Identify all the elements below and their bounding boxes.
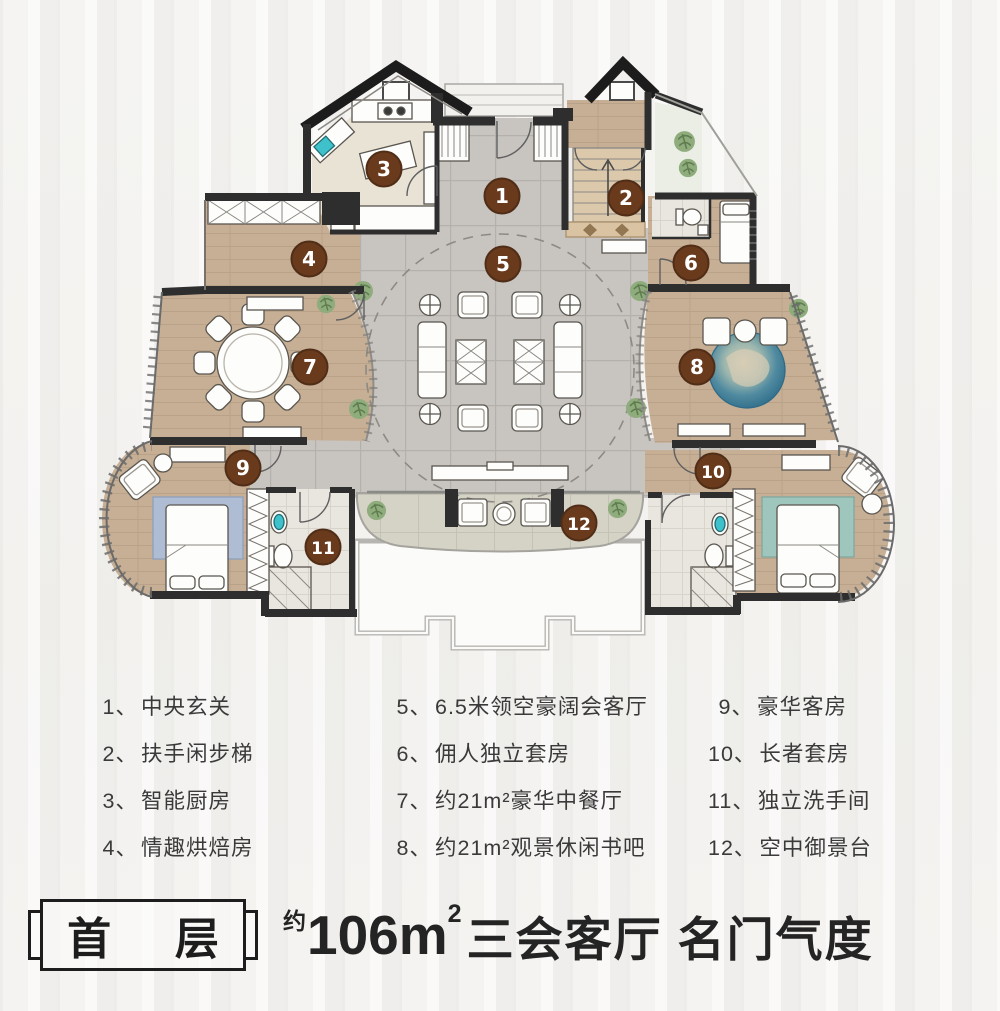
sink [698, 225, 708, 235]
toilet [683, 209, 701, 225]
pillow [723, 204, 749, 215]
burner [384, 107, 392, 115]
toilet-tank [726, 546, 733, 566]
side-table [862, 494, 882, 514]
legend-item-2: 2、扶手闲步梯 [92, 729, 254, 776]
sofa [554, 322, 582, 398]
room-marker-number: 9 [236, 456, 250, 480]
console [678, 424, 730, 436]
kitchen-hall-floor [360, 232, 440, 295]
living-floor [352, 291, 650, 441]
sideboard [247, 297, 303, 310]
legend-num: 10、 [708, 737, 756, 768]
stair-landing-floor [567, 100, 650, 148]
pillow [199, 576, 224, 589]
legend-label: 独立洗手间 [758, 784, 871, 815]
toilet-tank [676, 209, 683, 225]
legend-num: 1、 [92, 690, 138, 721]
legend-item-11: 11、独立洗手间 [708, 776, 872, 823]
legend-item-4: 4、情趣烘焙房 [92, 823, 254, 870]
legend-item-1: 1、中央玄关 [92, 682, 254, 729]
legend-label: 情趣烘焙房 [141, 831, 254, 862]
legend-num: 2、 [92, 737, 138, 768]
toilet [705, 544, 723, 568]
legend-item-8: 8、约21m²观景休闲书吧 [386, 823, 648, 870]
legend-label: 豪华客房 [757, 690, 847, 721]
legend-column-1: 1、中央玄关 2、扶手闲步梯 3、智能厨房 4、情趣烘焙房 [92, 682, 254, 870]
legend-item-6: 6、佣人独立套房 [386, 729, 648, 776]
legend: 1、中央玄关 2、扶手闲步梯 3、智能厨房 4、情趣烘焙房 5、6.5米领空豪阔… [0, 682, 1000, 882]
pillow [170, 576, 195, 589]
legend-num: 9、 [708, 690, 754, 721]
toilet [274, 544, 292, 568]
page: 123456789101112 1、中央玄关 2、扶手闲步梯 3、智能厨房 4、… [0, 0, 1000, 1011]
legend-item-12: 12、空中御景台 [708, 823, 872, 870]
dresser [782, 455, 830, 470]
stair-runner [566, 222, 645, 237]
room-marker-number: 1 [495, 184, 509, 208]
terrace-set [458, 499, 550, 526]
title-area-number: 106m [307, 903, 448, 967]
sofa [418, 322, 446, 398]
room-marker-number: 8 [690, 355, 704, 379]
room-marker-number: 12 [567, 515, 591, 535]
legend-item-7: 7、约21m²豪华中餐厅 [386, 776, 648, 823]
console [743, 424, 805, 436]
floor-label-box: 首层 [40, 899, 246, 971]
terrace-pillar [445, 489, 458, 527]
pillow [781, 574, 806, 587]
room-marker-number: 11 [311, 539, 335, 559]
floor-plan: 123456789101112 [0, 0, 1000, 665]
legend-label: 约21m²观景休闲书吧 [435, 831, 646, 862]
legend-num: 7、 [386, 784, 432, 815]
pillow [810, 574, 835, 587]
baking-shelf [208, 200, 320, 224]
legend-label: 空中御景台 [759, 831, 872, 862]
lounge-chair [760, 318, 787, 345]
room-marker-number: 7 [303, 355, 317, 379]
title-main-text: 三会客厅 名门气度 [467, 901, 874, 970]
legend-label: 中央玄关 [141, 690, 231, 721]
room-marker-number: 6 [684, 251, 698, 275]
legend-num: 11、 [708, 784, 755, 815]
room-marker-number: 4 [302, 247, 316, 271]
legend-label: 约21m²豪华中餐厅 [435, 784, 623, 815]
room-marker-number: 10 [701, 463, 725, 483]
room-marker-number: 5 [496, 252, 510, 276]
legend-num: 4、 [92, 831, 138, 862]
legend-num: 3、 [92, 784, 138, 815]
dresser [170, 447, 225, 462]
burner [397, 107, 405, 115]
legend-num: 12、 [708, 831, 756, 862]
lounge-chair [703, 318, 730, 345]
side-table [154, 454, 172, 472]
legend-item-9: 9、豪华客房 [708, 682, 872, 729]
terrace-table [493, 503, 515, 525]
legend-label: 智能厨房 [141, 784, 231, 815]
legend-item-5: 5、6.5米领空豪阔会客厅 [386, 682, 648, 729]
legend-item-3: 3、智能厨房 [92, 776, 254, 823]
stove [378, 103, 412, 119]
room-marker-number: 3 [377, 157, 391, 181]
title-approx-prefix: 约 [283, 902, 306, 936]
lower-floor-outline [357, 541, 643, 648]
legend-column-3: 9、豪华客房 10、长者套房 11、独立洗手间 12、空中御景台 [708, 682, 872, 870]
legend-column-2: 5、6.5米领空豪阔会客厅 6、佣人独立套房 7、约21m²豪华中餐厅 8、约2… [386, 682, 648, 870]
legend-item-10: 10、长者套房 [708, 729, 872, 776]
legend-label: 长者套房 [759, 737, 849, 768]
legend-label: 6.5米领空豪阔会客厅 [435, 690, 648, 721]
floor-label: 首层 [3, 903, 282, 967]
legend-label: 佣人独立套房 [435, 737, 570, 768]
room-marker-number: 2 [619, 186, 633, 210]
page-title: 约 106m 2 三会客厅 名门气度 [283, 896, 874, 974]
legend-label: 扶手闲步梯 [141, 737, 254, 768]
legend-num: 5、 [386, 690, 432, 721]
legend-num: 6、 [386, 737, 432, 768]
side-table [734, 320, 756, 342]
title-area-superscript: 2 [448, 900, 462, 929]
shoe-cabinet [602, 240, 646, 253]
legend-num: 8、 [386, 831, 432, 862]
